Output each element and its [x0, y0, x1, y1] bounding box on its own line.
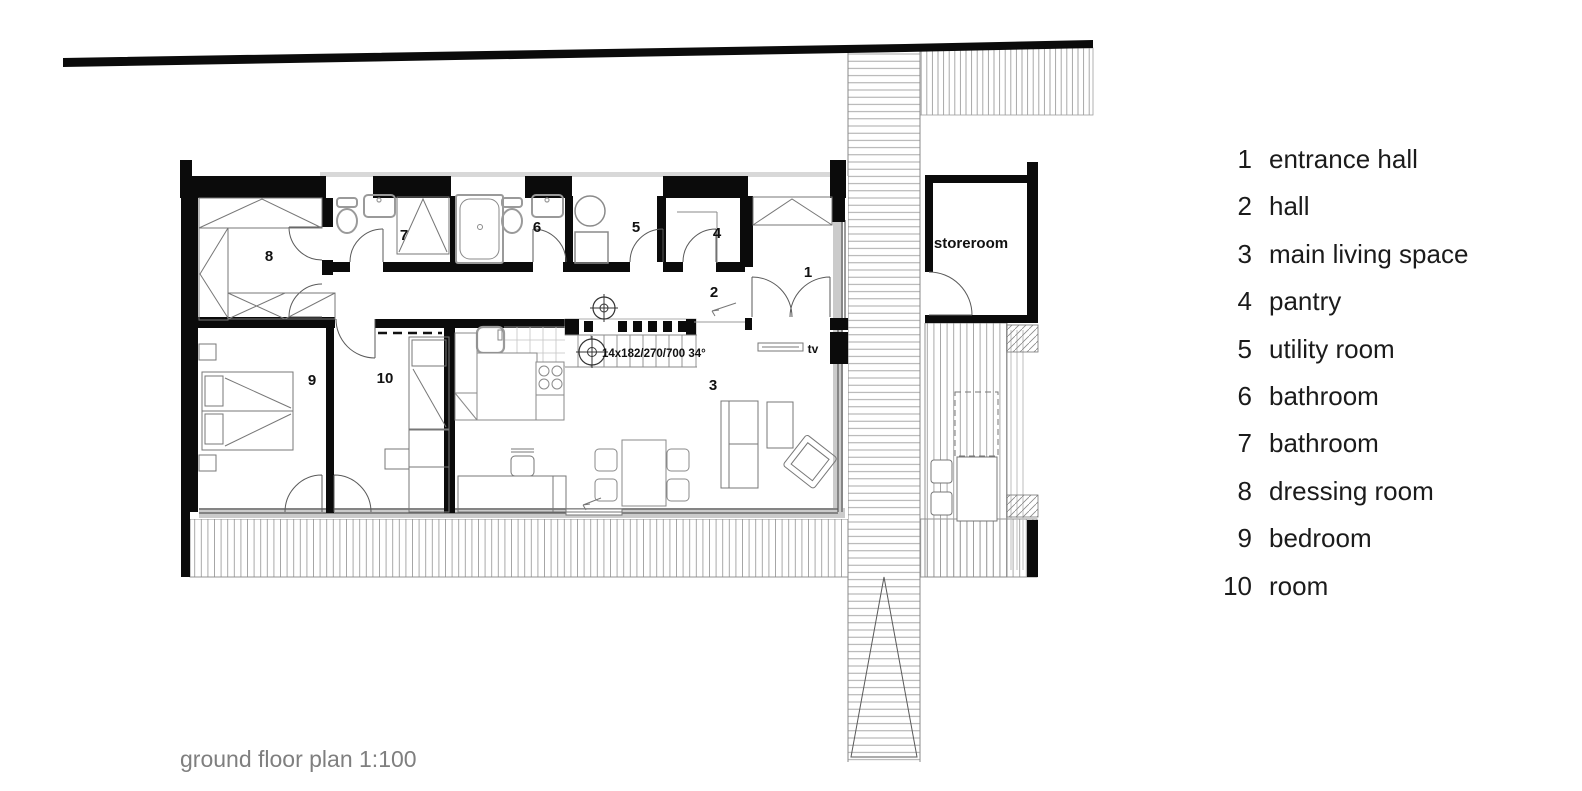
walkway-hatch — [848, 50, 920, 762]
room-number-label: 10 — [377, 370, 394, 387]
legend-item: 9bedroom — [1206, 515, 1468, 562]
legend-item: 7bathroom — [1206, 420, 1468, 467]
room-number-label: 5 — [632, 219, 640, 236]
room-number-label: 1 — [804, 264, 812, 281]
louver-panel-top — [1007, 325, 1038, 352]
room-number-label: 4 — [713, 225, 722, 242]
room-number-label: 7 — [400, 227, 408, 244]
louver-panel-bottom — [1007, 495, 1038, 517]
legend-item-label: bathroom — [1269, 373, 1379, 420]
legend-item-label: dressing room — [1269, 468, 1434, 515]
room-number-label: 2 — [710, 284, 718, 301]
tv-label: tv — [808, 342, 819, 356]
legend-item-label: bathroom — [1269, 420, 1379, 467]
legend-item: 8dressing room — [1206, 468, 1468, 515]
legend-item: 2hall — [1206, 183, 1468, 230]
stair-note: 14x182/270/700 34° — [602, 348, 706, 360]
room-number-label: 8 — [265, 248, 273, 265]
legend-item-number: 8 — [1206, 468, 1252, 515]
legend-item-number: 3 — [1206, 231, 1252, 278]
legend-item-number: 6 — [1206, 373, 1252, 420]
outdoor-table — [957, 457, 997, 521]
legend-item-number: 5 — [1206, 326, 1252, 373]
wall-nw-stub — [180, 160, 192, 198]
legend-item: 3main living space — [1206, 231, 1468, 278]
legend: 1entrance hall2hall3main living space4pa… — [1206, 136, 1468, 610]
legend-item-number: 9 — [1206, 515, 1252, 562]
legend-item-label: room — [1269, 563, 1328, 610]
floor-plan-sheet: 12345678910 storeroom tv 14x182/270/700 … — [0, 0, 1582, 791]
legend-item-number: 10 — [1206, 563, 1252, 610]
legend-item-number: 7 — [1206, 420, 1252, 467]
outdoor-chair — [931, 492, 952, 515]
legend-item-label: hall — [1269, 183, 1309, 230]
room-number-label: 6 — [533, 219, 541, 236]
storeroom-label: storeroom — [934, 235, 1008, 252]
canopy-hatch — [913, 48, 1093, 115]
legend-item-label: main living space — [1269, 231, 1468, 278]
legend-item-label: pantry — [1269, 278, 1341, 325]
plan-caption: ground floor plan 1:100 — [180, 746, 417, 773]
room-number-label: 3 — [709, 377, 717, 394]
outdoor-chair — [931, 460, 952, 483]
legend-item: 10room — [1206, 563, 1468, 610]
legend-item-label: bedroom — [1269, 515, 1372, 562]
legend-item-number: 2 — [1206, 183, 1252, 230]
legend-item-number: 4 — [1206, 278, 1252, 325]
legend-item-label: utility room — [1269, 326, 1395, 373]
wall-ne-stub — [830, 160, 846, 198]
legend-item: 1entrance hall — [1206, 136, 1468, 183]
legend-item-number: 1 — [1206, 136, 1252, 183]
room-number-label: 9 — [308, 372, 316, 389]
legend-item: 5utility room — [1206, 326, 1468, 373]
legend-item: 6bathroom — [1206, 373, 1468, 420]
kitchen-island — [477, 353, 537, 420]
legend-item: 4pantry — [1206, 278, 1468, 325]
legend-item-label: entrance hall — [1269, 136, 1418, 183]
east-terrace — [925, 323, 1007, 577]
